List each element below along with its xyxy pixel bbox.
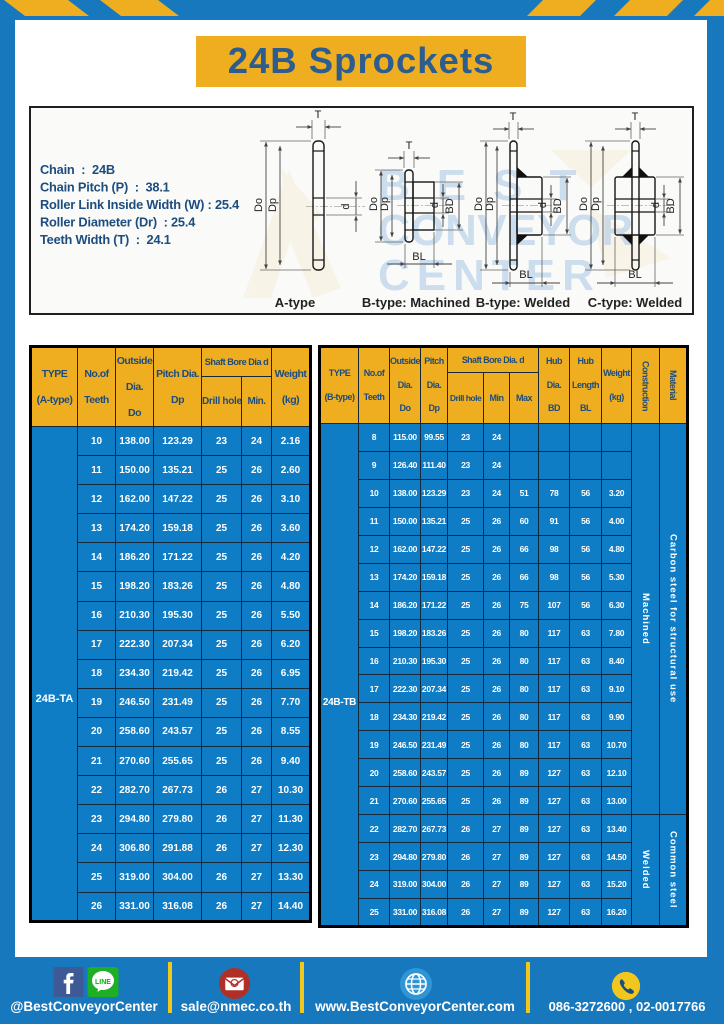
svg-text:BD: BD [444, 198, 456, 213]
svg-text:Dp: Dp [379, 197, 391, 211]
svg-text:Dp: Dp [267, 198, 279, 212]
svg-text:Chain Pitch (P) : 38.1: Chain Pitch (P) : 38.1 [40, 180, 170, 195]
svg-text:Chain : 24B: Chain : 24B [40, 162, 115, 177]
svg-text:Roller Link Inside Width (W) :: Roller Link Inside Width (W) : 25.4 [40, 197, 240, 212]
svg-text:T: T [632, 111, 639, 123]
svg-text:A-type: A-type [275, 295, 315, 310]
svg-text:d: d [429, 202, 441, 208]
svg-text:T: T [510, 111, 517, 123]
svg-text:BL: BL [519, 269, 532, 281]
svg-text:BD: BD [552, 198, 564, 213]
svg-text:d: d [537, 202, 549, 208]
svg-text:B-type: Welded: B-type: Welded [476, 295, 570, 310]
svg-text:Do: Do [578, 197, 590, 211]
svg-text:BD: BD [665, 198, 677, 213]
svg-text:B-type: Machined: B-type: Machined [362, 295, 470, 310]
svg-text:d: d [340, 203, 352, 209]
svg-text:Dp: Dp [484, 197, 496, 211]
svg-text:T: T [315, 109, 322, 121]
svg-text:C-type: Welded: C-type: Welded [588, 295, 682, 310]
svg-text:Dp: Dp [590, 197, 602, 211]
svg-text:LINE: LINE [95, 979, 111, 986]
svg-text:Teeth Width (T) : 24.1: Teeth Width (T) : 24.1 [40, 232, 171, 247]
svg-text:BL: BL [628, 269, 641, 281]
svg-text:Roller Diameter (Dr) : 25.4: Roller Diameter (Dr) : 25.4 [40, 215, 196, 230]
svg-text:d: d [650, 202, 662, 208]
svg-text:T: T [406, 140, 413, 152]
svg-text:BL: BL [412, 251, 425, 263]
svg-text:Do: Do [253, 198, 265, 212]
